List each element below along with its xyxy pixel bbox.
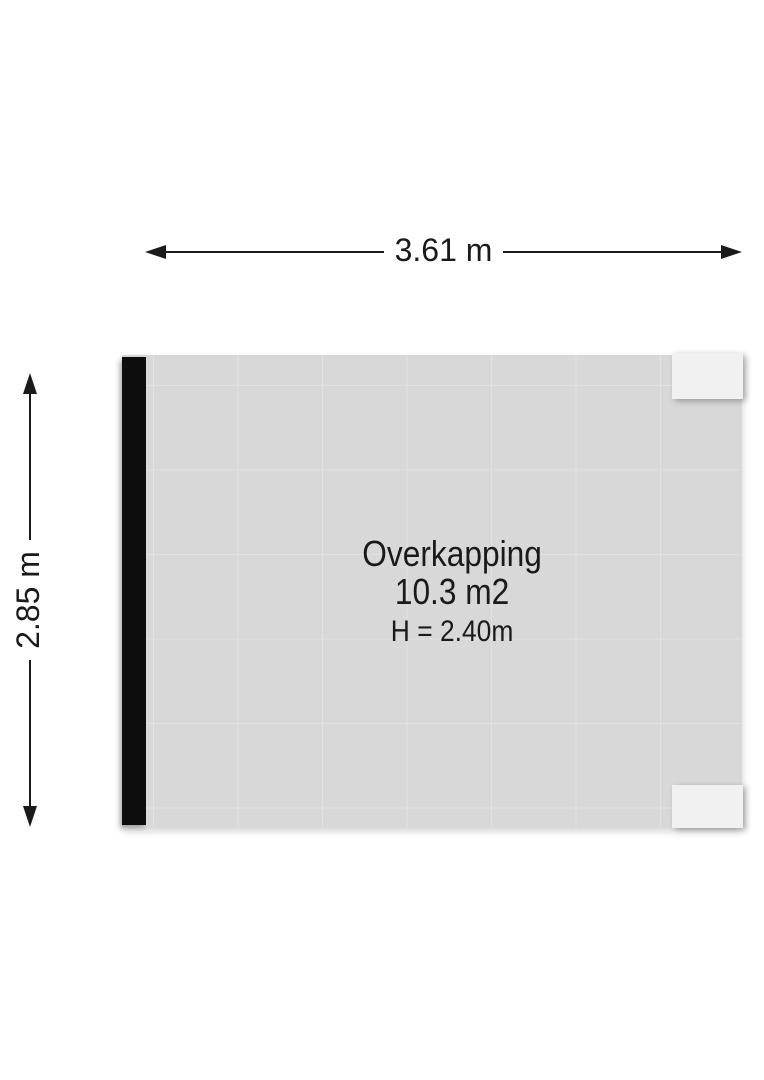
room-ceiling-height: H = 2.40m [362, 617, 542, 647]
width-dimension: 3.61 m [145, 232, 742, 272]
dimension-line [166, 251, 384, 253]
dimension-line [29, 394, 31, 540]
arrowhead-right-icon [721, 245, 742, 259]
post-bottom-right [672, 785, 743, 828]
room-area: 10.3 m2 [362, 573, 542, 611]
room-overkapping: Overkapping 10.3 m2 H = 2.40m [122, 355, 742, 827]
height-dimension-label: 2.85 m [12, 540, 44, 660]
arrowhead-left-icon [145, 245, 166, 259]
dimension-line [29, 660, 31, 806]
room-name: Overkapping [362, 535, 542, 573]
arrowhead-up-icon [23, 373, 37, 394]
post-top-right [672, 353, 743, 399]
width-dimension-label: 3.61 m [384, 234, 504, 266]
floorplan-canvas: 3.61 m 2.85 m Overkapping 10.3 m2 H = 2.… [0, 0, 764, 1080]
height-dimension: 2.85 m [10, 373, 50, 827]
floor-tiles: Overkapping 10.3 m2 H = 2.40m [146, 355, 742, 827]
room-label: Overkapping 10.3 m2 H = 2.40m [362, 535, 542, 647]
wall-left [122, 357, 146, 825]
dimension-line [503, 251, 721, 253]
arrowhead-down-icon [23, 806, 37, 827]
